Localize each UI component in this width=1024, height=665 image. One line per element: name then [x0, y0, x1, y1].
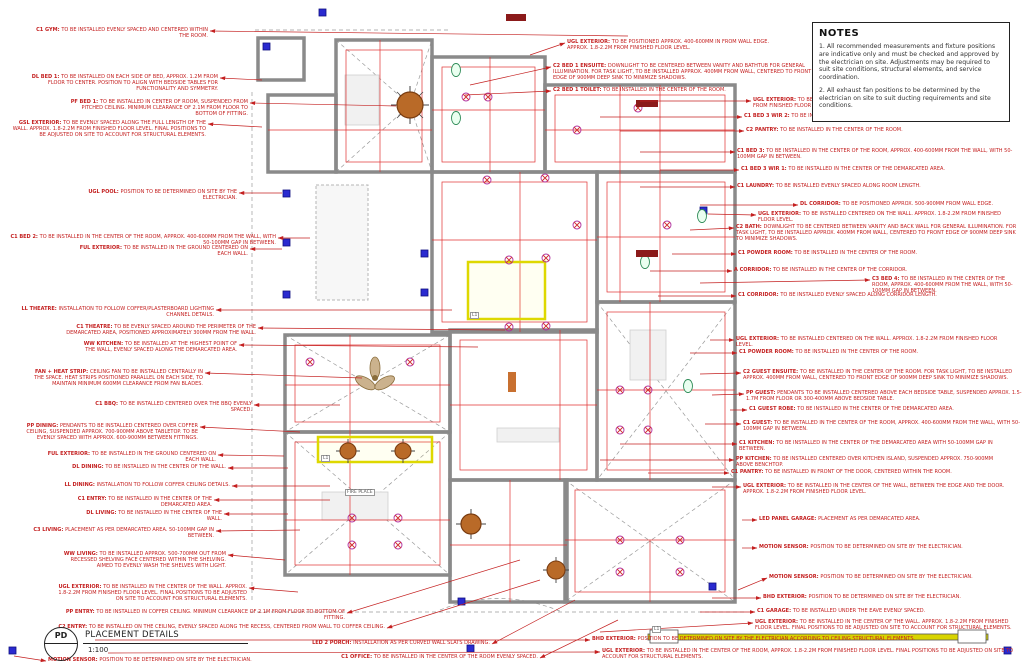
annotation-callout: UGL EXTERIOR: TO BE INSTALLED IN THE CEN… [743, 484, 1024, 496]
leader-line [249, 588, 298, 592]
title-rule [83, 643, 248, 644]
leader-line [216, 530, 300, 531]
leader-line [200, 427, 300, 432]
annotation-callout: C1 PANTRY: TO BE INSTALLED IN FRONT OF T… [731, 470, 983, 476]
leader-line [347, 560, 520, 613]
annotation-callout: C1 POWDER ROOM: TO BE INSTALLED IN THE C… [738, 251, 970, 257]
leader-line [210, 31, 628, 36]
annotation-callout: BHD EXTERIOR: POSITION TO BE DETERMINED … [592, 637, 1024, 643]
annotation-callout: PP ENTRY: TO BE INSTALLED IN COFFER CEIL… [53, 610, 345, 622]
furniture [322, 75, 666, 520]
annotation-callout: PP KITCHEN: TO BE INSTALLED CENTERED OVE… [736, 457, 1008, 469]
annotation-callout: C1 BED 3 WIR 1: TO BE INSTALLED IN THE C… [741, 167, 983, 173]
leader-line [220, 78, 262, 80]
annotation-callout: FAN + HEAT STRIP: CEILING FAN TO BE INST… [31, 370, 203, 387]
annotation-callout: C1 BED 3: TO BE INSTALLED IN THE CENTER … [737, 149, 1019, 161]
annotation-callout: UGL EXTERIOR: TO BE INSTALLED IN THE CEN… [55, 585, 247, 602]
pool-footprint [316, 185, 368, 300]
annotation-callout: C2 BED 1 TOILET: TO BE INSTALLED IN THE … [553, 88, 775, 94]
leader-line [690, 228, 734, 230]
annotation-callout: LED PANEL GARAGE: PLACEMENT AS PER DEMAR… [759, 517, 991, 523]
annotation-callout: UGL EXTERIOR: TO BE POSITIONED APPROX. 4… [567, 40, 785, 52]
annotation-callout: C1 THEATRE: TO BE EVENLY SPACED AROUND T… [64, 325, 256, 337]
annotation-callout: BHD EXTERIOR: POSITION TO BE DETERMINED … [763, 595, 1015, 601]
leader-line [738, 578, 767, 590]
annotation-callout: C1 GUEST: TO BE INSTALLED IN THE CENTER … [743, 421, 1024, 433]
walls [258, 38, 735, 602]
leader-line [239, 345, 478, 347]
leader-line [465, 91, 551, 95]
annotation-callout: LL THEATRE: INSTALLATION TO FOLLOW COFFE… [18, 307, 214, 319]
plan-label: L1 [652, 626, 661, 633]
leader-line [208, 124, 262, 127]
annotation-callout: DL DINING: TO BE INSTALLED IN THE CENTER… [64, 465, 226, 471]
annotation-callout: LED 2 PORCH: INSTALLATION AS PER CURVED … [258, 641, 490, 647]
drawing-title: PLACEMENT DETAILS [85, 630, 179, 640]
leader-line [530, 43, 565, 55]
leader-line [712, 394, 744, 395]
annotation-callout: A CORRIDOR: TO BE INSTALLED IN THE CENTE… [734, 268, 966, 274]
annotation-callout: UGL EXTERIOR: TO BE INSTALLED IN THE CEN… [602, 649, 1022, 661]
title-block: PD PLACEMENT DETAILS 1:100 [40, 624, 270, 662]
annotation-callout: FUL EXTERIOR: TO BE INSTALLED IN THE GRO… [34, 452, 216, 464]
annotation-callout: WW KITCHEN: TO BE INSTALLED AT THE HIGHE… [75, 342, 237, 354]
annotation-callout: C1 KITCHEN: TO BE INSTALLED IN THE CENTE… [739, 441, 1001, 453]
annotation-callout: WW LIVING: TO BE INSTALLED APPROX. 500-7… [58, 552, 226, 569]
drawing-code: PD [45, 631, 77, 640]
leader-line [250, 103, 396, 106]
annotation-callout: UGL EXTERIOR: TO BE INSTALLED IN THE CEN… [755, 620, 1021, 632]
annotation-callout: C2 PANTRY: TO BE INSTALLED IN THE CENTER… [746, 128, 968, 134]
plan-label: L1 [470, 312, 479, 319]
leader-line [700, 373, 741, 374]
leader-line [258, 328, 505, 330]
annotation-callout: DL CORRIDOR: TO BE POSITIONED APPROX. 50… [800, 202, 1020, 208]
circuit-lines [268, 40, 735, 602]
annotation-callout: LL DINING: INSTALLATION TO FOLLOW COFFER… [64, 483, 230, 489]
leader-line [700, 280, 870, 283]
annotation-callout: C3 LIVING: PLACEMENT AS PER DEMARCATED A… [32, 528, 214, 540]
annotation-callout: C1 ENTRY: TO BE INSTALLED IN THE CENTER … [46, 497, 212, 509]
annotation-callout: FUL EXTERIOR: TO BE INSTALLED IN THE GRO… [68, 246, 248, 258]
annotation-callout: DL LIVING: TO BE INSTALLED IN THE CENTER… [70, 511, 222, 523]
annotation-callout: UGL EXTERIOR: TO BE INSTALLED CENTERED O… [758, 212, 1018, 224]
notes-panel: NOTES 1. All recommended measurements an… [812, 22, 1010, 122]
notes-title: NOTES [819, 28, 1003, 39]
leader-line [708, 214, 756, 215]
annotation-callout: MOTION SENSOR: POSITION TO BE DETERMINED… [759, 545, 1011, 551]
annotation-callout: C2 BED 1 ENSUITE: DOWNLIGHT TO BE CENTER… [553, 64, 815, 81]
annotation-callout: C1 GARAGE: TO BE INSTALLED UNDER THE EAV… [757, 609, 999, 615]
annotation-callout: C2 BATH: DOWNLIGHT TO BE CENTERED BETWEE… [736, 225, 1022, 242]
ceiling-fan-symbol [336, 86, 569, 583]
plan-label: FIRE PLACE [345, 489, 375, 496]
leader-line [600, 623, 753, 632]
annotation-callout: GSL EXTERIOR: TO BE EVENLY SPACED ALONG … [10, 121, 206, 138]
annotation-callout: PF BED 1: TO BE INSTALLED IN CENTER OF R… [68, 100, 248, 117]
notes-paragraph-1: 1. All recommended measurements and fixt… [819, 43, 1003, 82]
propeller-fan-symbol [353, 357, 396, 393]
annotation-callout: C1 BBQ: TO BE INSTALLED CENTERED OVER TH… [90, 402, 252, 414]
annotation-callout: PP DINING: PENDANTS TO BE INSTALLED CENT… [22, 424, 198, 441]
leader-line [387, 580, 540, 628]
downlight-symbol [306, 93, 684, 576]
leader-line [218, 455, 284, 456]
leader-line [492, 600, 575, 644]
leader-line [205, 373, 362, 378]
leader-line [228, 555, 285, 560]
plan-label: L1 [321, 455, 330, 462]
annotation-callout: C1 LAUNDRY: TO BE INSTALLED EVENLY SPACE… [737, 184, 969, 190]
annotation-callout: MOTION SENSOR: POSITION TO BE DETERMINED… [769, 575, 1021, 581]
annotation-callout: UGL EXTERIOR: TO BE INSTALLED CENTERED O… [736, 337, 998, 349]
eave-outline [250, 30, 745, 612]
annotation-callout: C1 CORRIDOR: TO BE INSTALLED EVENLY SPAC… [738, 293, 980, 299]
bubble-divider [45, 643, 77, 644]
annotation-callout: DL BED 1: TO BE INSTALLED ON EACH SIDE O… [28, 75, 218, 92]
drawing-scale: 1:100 [88, 646, 108, 654]
annotation-callout: PP GUEST: PENDANTS TO BE INSTALLED CENTE… [746, 391, 1024, 403]
notes-paragraph-2: 2. All exhaust fan positions to be deter… [819, 87, 1003, 110]
annotation-callout: C1 GUEST ROBE: TO BE INSTALLED IN THE CE… [749, 407, 991, 413]
annotation-callout: C1 POWDER ROOM: TO BE INSTALLED IN THE C… [739, 350, 971, 356]
annotation-callout: C2 GUEST ENSUITE: TO BE INSTALLED IN THE… [743, 370, 1024, 382]
leader-line [470, 67, 551, 85]
annotation-callout: UGL POOL: POSITION TO BE DETERMINED ON S… [65, 190, 237, 202]
placement-details-sheet: C1 GYM: TO BE INSTALLED EVENLY SPACED AN… [0, 0, 1024, 665]
bathroom-fixture [452, 64, 707, 393]
drawing-code-bubble: PD [44, 627, 78, 661]
annotation-callout: C1 GYM: TO BE INSTALLED EVENLY SPACED AN… [28, 28, 208, 40]
coffer-highlight [318, 262, 545, 462]
